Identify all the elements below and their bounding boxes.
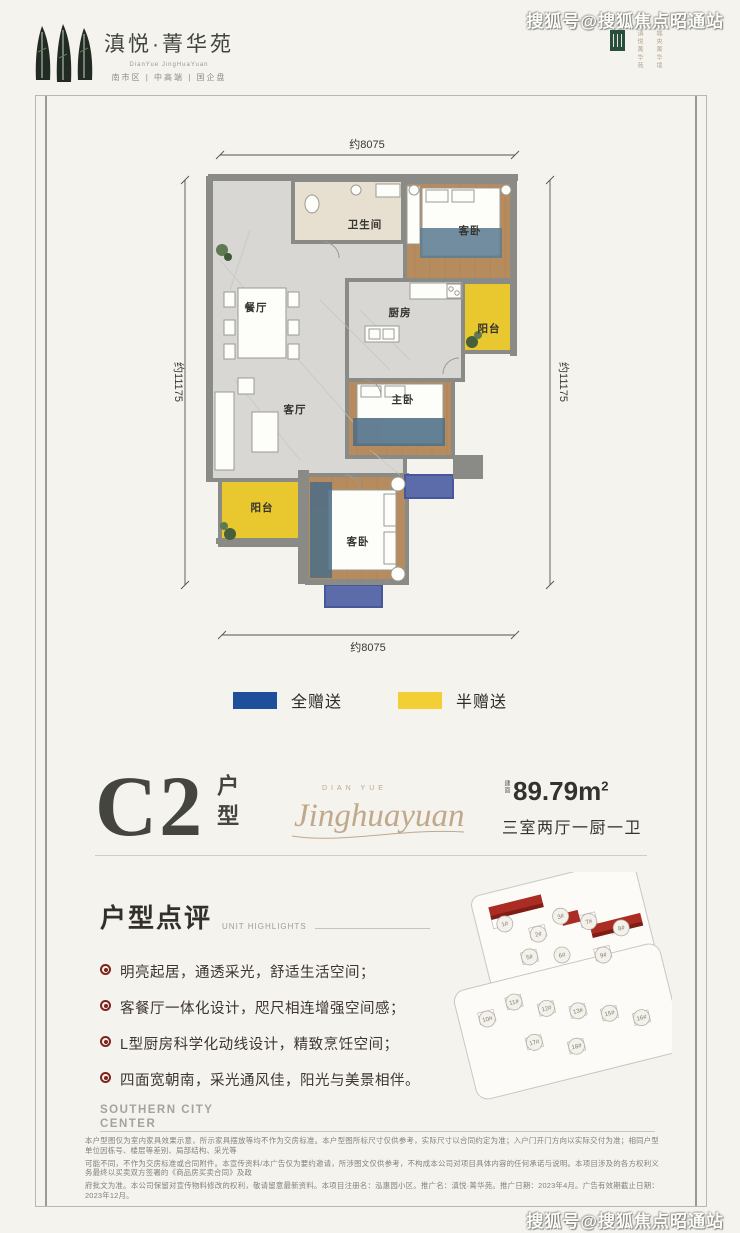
- legend-half-gift: 半赠送: [398, 688, 507, 712]
- room-label-bedroom-top: 客卧: [458, 224, 482, 237]
- full-gift-area-bottom: [325, 585, 382, 607]
- dim-right: 约11175: [557, 362, 570, 402]
- emblem-vertical-text-2: 城央菁华境: [654, 30, 663, 82]
- highlight-item: L型厨房科学化动线设计，精致烹饪空间；: [100, 1033, 430, 1054]
- brand-signature: DIAN YUE Jinghuayuan: [282, 768, 472, 853]
- room-label-bedroom-bottom: 客卧: [346, 535, 370, 548]
- dim-left: 约11175: [172, 362, 185, 402]
- bullet-icon: [100, 1072, 111, 1083]
- highlights-title: 户型点评: [100, 898, 212, 935]
- highlights-rule: [315, 928, 430, 929]
- unit-code-block: C2 户型: [95, 760, 242, 852]
- signature-caps: DIAN YUE: [322, 785, 387, 792]
- sohu-watermark-top: 搜狐号@搜狐焦点昭通站: [526, 7, 724, 32]
- full-gift-area-right: [405, 475, 453, 498]
- area-block: 建面 89.79m2 三室两厅一厨一卫: [502, 776, 652, 838]
- room-label-master: 主卧: [392, 393, 415, 406]
- area-value: 89.79m2: [513, 776, 608, 807]
- bullet-icon: [100, 964, 111, 975]
- dim-bottom: 约8075: [350, 641, 385, 654]
- brand-name-en: DianYue JingHuaYuan: [104, 62, 234, 68]
- sohu-watermark-bottom: 搜狐号@搜狐焦点昭通站: [526, 1207, 724, 1232]
- site-plan: 1#2#3#5#6#7#8#9#10#11#12#13#15#16#17#18#: [452, 872, 672, 1104]
- disclaimer: 本户型图仅为室内家具效果示意，所示家具摆放等均不作为交房标准。本户型图所标尺寸仅…: [85, 1136, 659, 1204]
- disclaimer-line: 可能不同，不作为交房标准或合同附件。本宣传资料/本广告仅为要约邀请，所涉图文仅供…: [85, 1159, 659, 1178]
- signature-script: Jinghuayuan: [294, 798, 464, 834]
- disclaimer-line: 府批文为准。本公司保留对宣传物料修改的权利，敬请留意最新资料。本项目注册名：泓惠…: [85, 1181, 659, 1200]
- full-gift-label: 全赠送: [291, 688, 342, 712]
- room-label-dining: 餐厅: [244, 301, 268, 314]
- brand-name: 滇悦·菁华苑: [104, 28, 294, 58]
- highlight-item: 明亮起居，通透采光，舒适生活空间；: [100, 961, 430, 982]
- full-gift-swatch: [233, 692, 277, 709]
- frame-accent-left: [45, 96, 47, 1206]
- half-gift-label: 半赠送: [456, 688, 507, 712]
- brand-logo-trees-icon: [30, 22, 100, 89]
- emblem-bars-icon: [610, 30, 625, 51]
- legend: 全赠送 半赠送: [0, 688, 740, 712]
- highlights-subtitle: UNIT HIGHLIGHTS: [222, 922, 307, 931]
- frame-accent-right: [695, 96, 697, 1206]
- legend-full-gift: 全赠送: [233, 688, 342, 712]
- unit-highlights-section: 户型点评 UNIT HIGHLIGHTS 明亮起居，通透采光，舒适生活空间； 客…: [100, 898, 430, 1105]
- brand-tagline: 南市区 | 中高端 | 国企盘: [104, 72, 234, 83]
- emblem-vertical-text-1: 滇悦菁华苑: [635, 30, 644, 82]
- dim-top: 约8075: [349, 138, 384, 151]
- room-label-balcony-left: 阳台: [251, 501, 274, 514]
- corner-emblem: 滇悦菁华苑 城央菁华境: [610, 30, 663, 82]
- bullet-icon: [100, 1036, 111, 1047]
- area-label: 建面: [502, 780, 511, 794]
- room-label-kitchen: 厨房: [389, 306, 412, 319]
- highlight-item: 客餐厅一体化设计，咫尺相连增强空间感；: [100, 997, 430, 1018]
- highlight-item: 四面宽朝南，采光通风佳，阳光与美景相伴。: [100, 1069, 430, 1090]
- section-divider: [95, 855, 647, 856]
- floor-plan: 卫生间 客卧 阳台 餐厅 厨房 客厅 主卧 阳台 客卧 约8075 约8075 …: [160, 130, 580, 660]
- layout-description: 三室两厅一厨一卫: [502, 814, 652, 838]
- half-gift-swatch: [398, 692, 442, 709]
- bullet-icon: [100, 1000, 111, 1011]
- unit-code: C2: [95, 760, 204, 852]
- room-label-balcony-right: 阳台: [478, 322, 501, 335]
- developer-brand: SOUTHERN CITY CENTER: [100, 1103, 213, 1131]
- highlights-list: 明亮起居，通透采光，舒适生活空间； 客餐厅一体化设计，咫尺相连增强空间感； L型…: [100, 961, 430, 1090]
- brand-text-block: 滇悦·菁华苑 DianYue JingHuaYuan 南市区 | 中高端 | 国…: [104, 28, 294, 83]
- room-label-living: 客厅: [283, 403, 307, 416]
- unit-code-suffix: 户型: [210, 774, 242, 834]
- room-label-bathroom: 卫生间: [348, 218, 383, 231]
- footer-rule: [100, 1131, 655, 1132]
- disclaimer-line: 本户型图仅为室内家具效果示意，所示家具摆放等均不作为交房标准。本户型图所标尺寸仅…: [85, 1136, 659, 1155]
